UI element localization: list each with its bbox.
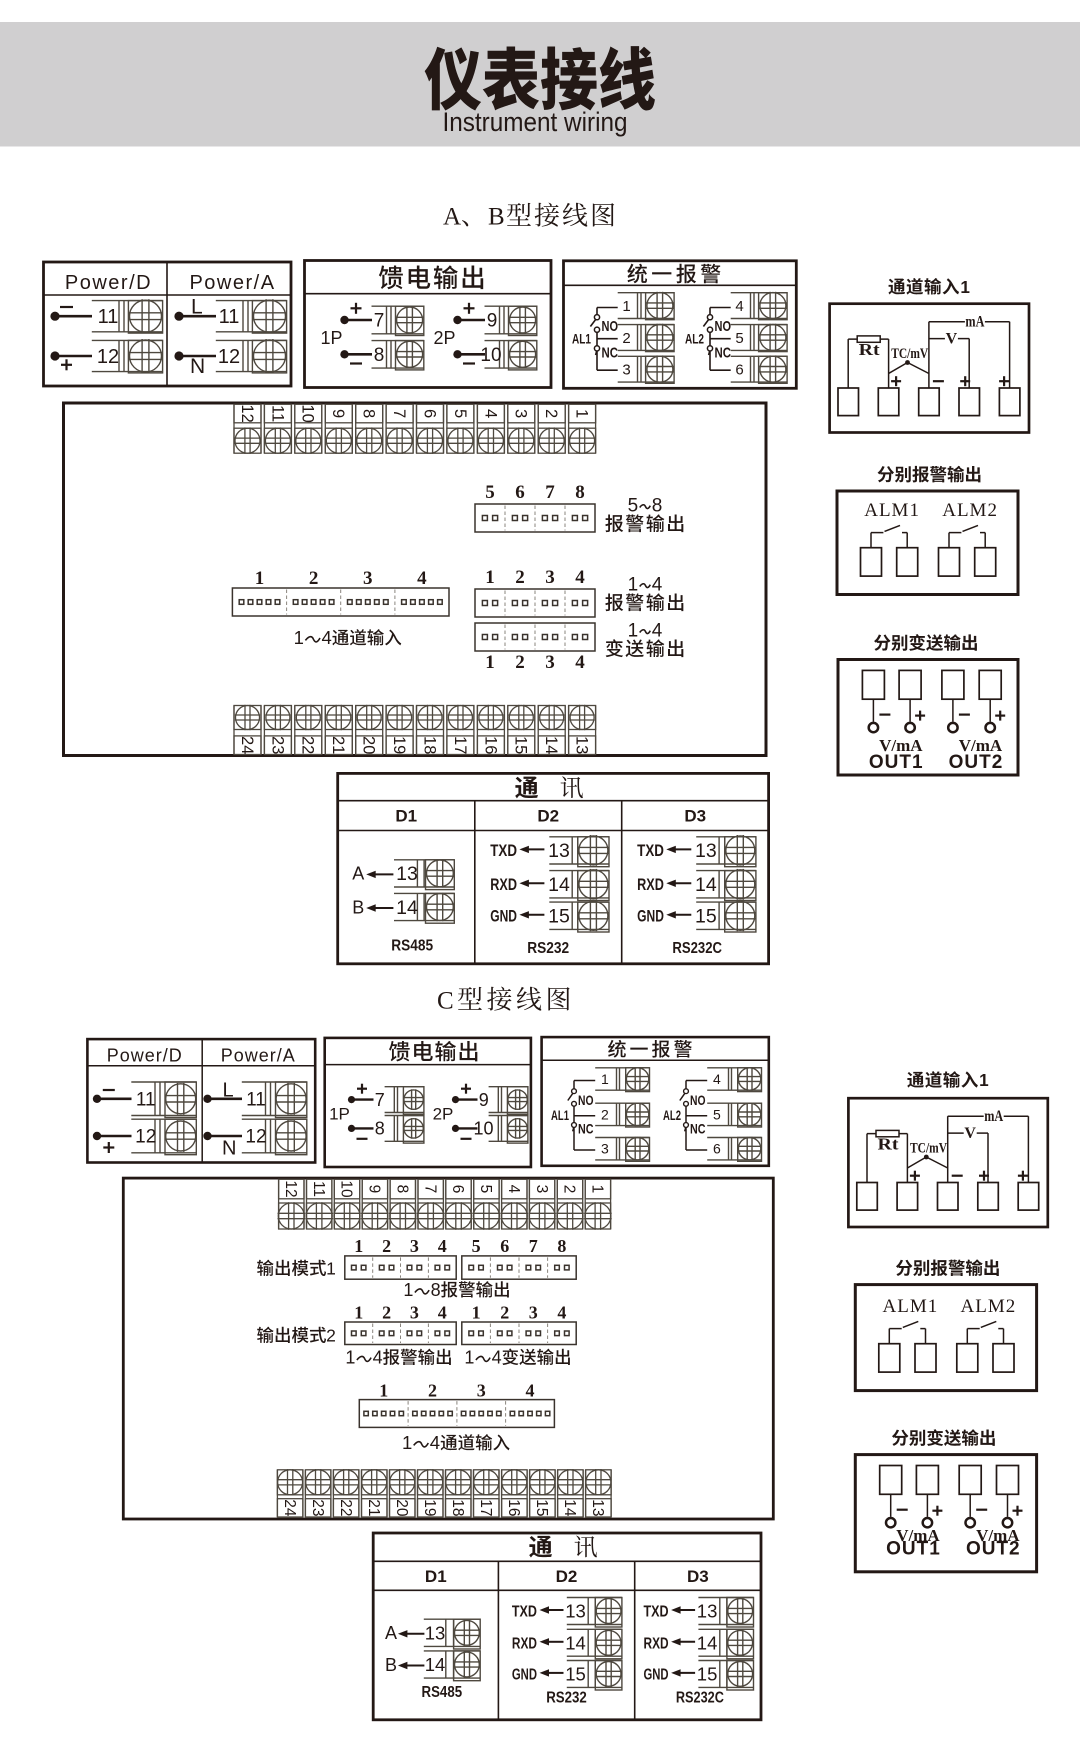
svg-text:4: 4: [492, 1348, 502, 1368]
svg-text:14: 14: [695, 874, 717, 896]
svg-text:15: 15: [695, 906, 717, 928]
svg-text:4: 4: [481, 409, 499, 418]
svg-text:8: 8: [652, 496, 663, 517]
svg-text:11: 11: [310, 1181, 327, 1197]
svg-text:2P: 2P: [433, 1105, 454, 1124]
svg-text:4: 4: [417, 568, 427, 589]
svg-text:14: 14: [396, 897, 418, 919]
svg-text:5: 5: [472, 1236, 481, 1256]
svg-text:2: 2: [561, 1185, 578, 1194]
svg-text:5: 5: [451, 409, 469, 418]
svg-text:D2: D2: [556, 1567, 578, 1586]
svg-text:18: 18: [420, 736, 438, 754]
svg-text:3: 3: [512, 409, 530, 418]
svg-text:7: 7: [529, 1236, 538, 1256]
svg-text:2: 2: [309, 568, 319, 589]
svg-text:NC: NC: [715, 344, 732, 361]
svg-text:RXD: RXD: [643, 1635, 668, 1652]
svg-text:1: 1: [485, 652, 495, 673]
svg-text:B: B: [385, 1655, 397, 1675]
svg-text:RXD: RXD: [490, 876, 517, 894]
svg-text:V: V: [964, 1125, 976, 1142]
svg-text:4: 4: [505, 1185, 522, 1194]
svg-text:RS232C: RS232C: [672, 940, 722, 957]
svg-text:16: 16: [505, 1499, 522, 1516]
svg-text:17: 17: [477, 1499, 494, 1516]
svg-text:1: 1: [573, 409, 591, 418]
svg-text:ALM2: ALM2: [961, 1296, 1017, 1317]
svg-text:GND: GND: [490, 907, 517, 925]
svg-text:NO: NO: [578, 1092, 594, 1108]
svg-text:TC/mV: TC/mV: [891, 346, 928, 362]
svg-text:C: C: [437, 988, 454, 1015]
svg-text:OUT2: OUT2: [949, 752, 1004, 773]
svg-text:1: 1: [345, 1348, 355, 1368]
svg-text:13: 13: [589, 1499, 606, 1516]
svg-text:4: 4: [557, 1303, 566, 1323]
svg-text:15: 15: [512, 736, 530, 754]
svg-text:TC/mV: TC/mV: [910, 1141, 947, 1157]
svg-text:20: 20: [393, 1499, 410, 1517]
svg-text:4: 4: [652, 575, 663, 596]
svg-text:2: 2: [428, 1381, 437, 1401]
svg-text:5: 5: [628, 496, 639, 517]
svg-text:7: 7: [374, 311, 385, 332]
svg-text:Instrument wiring: Instrument wiring: [443, 107, 628, 137]
svg-text:12: 12: [97, 346, 119, 368]
svg-text:B: B: [352, 897, 364, 917]
svg-text:24: 24: [238, 736, 256, 754]
svg-text:Power/D: Power/D: [107, 1046, 183, 1066]
svg-text:1: 1: [464, 1348, 474, 1368]
svg-text:10: 10: [338, 1180, 355, 1198]
svg-text:1: 1: [485, 567, 495, 588]
svg-text:4: 4: [575, 652, 585, 673]
svg-text:4: 4: [373, 1348, 383, 1368]
svg-text:3: 3: [529, 1303, 538, 1323]
svg-text:V: V: [946, 331, 958, 348]
svg-text:1: 1: [294, 627, 304, 648]
svg-text:5: 5: [713, 1106, 721, 1122]
svg-text:AL2: AL2: [685, 331, 704, 347]
svg-text:6: 6: [713, 1141, 721, 1157]
svg-text:NC: NC: [690, 1121, 706, 1137]
svg-text:5: 5: [485, 482, 495, 503]
svg-text:1: 1: [628, 575, 639, 596]
svg-text:2: 2: [500, 1303, 509, 1323]
svg-text:12: 12: [135, 1127, 156, 1148]
svg-text:3: 3: [410, 1236, 419, 1256]
svg-text:6: 6: [420, 409, 438, 418]
svg-text:1: 1: [979, 1070, 989, 1090]
svg-text:3: 3: [533, 1185, 550, 1194]
svg-text:3: 3: [622, 361, 630, 378]
svg-text:2: 2: [601, 1106, 609, 1122]
svg-text:4: 4: [735, 298, 743, 315]
svg-text:NC: NC: [602, 344, 619, 361]
svg-text:7: 7: [390, 409, 408, 418]
svg-text:1: 1: [622, 298, 630, 315]
svg-text:24: 24: [281, 1499, 298, 1517]
svg-text:4: 4: [438, 1236, 447, 1256]
svg-text:8: 8: [557, 1236, 566, 1256]
svg-text:9: 9: [479, 1090, 489, 1110]
svg-text:A: A: [443, 204, 461, 231]
svg-text:6: 6: [500, 1236, 509, 1256]
svg-text:8: 8: [575, 482, 585, 503]
svg-text:14: 14: [425, 1654, 446, 1675]
svg-text:15: 15: [533, 1499, 550, 1516]
svg-text:8: 8: [375, 1119, 385, 1139]
svg-text:12: 12: [282, 1180, 299, 1197]
svg-text:8: 8: [374, 345, 385, 366]
svg-text:5: 5: [735, 330, 743, 347]
svg-text:20: 20: [360, 736, 378, 754]
svg-text:AL2: AL2: [663, 1108, 681, 1123]
svg-text:Power/A: Power/A: [221, 1046, 296, 1066]
svg-text:2: 2: [622, 330, 630, 347]
svg-text:AL1: AL1: [572, 331, 591, 347]
svg-text:D2: D2: [537, 807, 559, 826]
svg-text:13: 13: [573, 736, 591, 754]
svg-text:AL1: AL1: [551, 1108, 569, 1123]
svg-text:11: 11: [98, 306, 119, 328]
svg-text:A: A: [352, 864, 364, 884]
svg-text:6: 6: [515, 482, 525, 503]
svg-text:Rt: Rt: [859, 340, 881, 359]
svg-text:12: 12: [218, 346, 240, 368]
svg-text:7: 7: [421, 1185, 438, 1194]
svg-text:6: 6: [449, 1185, 466, 1194]
svg-text:GND: GND: [637, 907, 664, 925]
svg-text:RS232: RS232: [527, 940, 569, 957]
svg-text:Power/D: Power/D: [65, 272, 152, 294]
svg-text:8: 8: [393, 1185, 410, 1194]
svg-text:1P: 1P: [329, 1105, 350, 1124]
svg-text:1: 1: [472, 1303, 481, 1323]
svg-text:2: 2: [542, 409, 560, 418]
svg-text:11: 11: [268, 405, 286, 422]
svg-text:D1: D1: [395, 807, 417, 826]
svg-text:RS232: RS232: [546, 1690, 587, 1707]
svg-text:23: 23: [309, 1499, 326, 1516]
svg-text:4: 4: [652, 621, 663, 642]
svg-text:7: 7: [545, 482, 555, 503]
svg-text:4: 4: [430, 1432, 440, 1453]
svg-text:1: 1: [354, 1303, 363, 1323]
svg-text:13: 13: [565, 1601, 586, 1622]
svg-text:TXD: TXD: [643, 1604, 668, 1621]
svg-text:8: 8: [431, 1280, 441, 1300]
svg-text:8: 8: [360, 409, 378, 418]
svg-text:ALM1: ALM1: [883, 1296, 939, 1317]
svg-text:N: N: [190, 355, 205, 378]
svg-text:14: 14: [561, 1499, 578, 1517]
svg-text:2: 2: [382, 1236, 391, 1256]
svg-text:1: 1: [354, 1236, 363, 1256]
svg-text:12: 12: [238, 404, 256, 422]
svg-text:3: 3: [477, 1381, 486, 1401]
svg-text:21: 21: [329, 736, 347, 754]
svg-text:9: 9: [366, 1185, 383, 1194]
svg-text:2: 2: [515, 652, 525, 673]
svg-text:ALM2: ALM2: [942, 500, 998, 521]
svg-text:NC: NC: [578, 1121, 594, 1137]
svg-text:2: 2: [382, 1303, 391, 1323]
svg-text:OUT1: OUT1: [886, 1539, 941, 1560]
svg-text:L: L: [191, 296, 203, 319]
svg-text:13: 13: [425, 1622, 446, 1643]
svg-text:A: A: [385, 1623, 397, 1643]
svg-text:RS485: RS485: [421, 1684, 462, 1701]
svg-text:D3: D3: [684, 807, 706, 826]
svg-text:15: 15: [548, 906, 570, 928]
svg-text:6: 6: [735, 361, 743, 378]
svg-text:2: 2: [326, 1326, 336, 1346]
svg-text:RS485: RS485: [391, 938, 433, 955]
svg-text:23: 23: [268, 736, 286, 754]
svg-text:19: 19: [390, 736, 408, 754]
svg-text:1: 1: [628, 621, 639, 642]
svg-text:15: 15: [565, 1663, 586, 1684]
svg-text:4: 4: [321, 627, 331, 648]
svg-text:OUT2: OUT2: [966, 1539, 1021, 1560]
svg-text:11: 11: [136, 1090, 156, 1111]
svg-text:L: L: [223, 1080, 234, 1102]
svg-text:mA: mA: [965, 314, 984, 331]
svg-text:mA: mA: [984, 1108, 1003, 1125]
svg-text:19: 19: [421, 1499, 438, 1516]
svg-text:14: 14: [565, 1632, 586, 1653]
svg-text:4: 4: [713, 1071, 721, 1087]
svg-text:RS232C: RS232C: [676, 1690, 724, 1707]
svg-text:13: 13: [697, 1601, 718, 1622]
svg-text:14: 14: [542, 736, 560, 754]
svg-text:Rt: Rt: [878, 1135, 900, 1154]
svg-text:3: 3: [410, 1303, 419, 1323]
svg-text:14: 14: [548, 874, 570, 896]
svg-text:3: 3: [363, 568, 373, 589]
svg-text:4: 4: [526, 1381, 535, 1401]
svg-text:2: 2: [515, 567, 525, 588]
svg-text:1: 1: [403, 1280, 413, 1300]
svg-text:13: 13: [548, 840, 570, 862]
svg-text:22: 22: [299, 736, 317, 754]
svg-text:1: 1: [589, 1185, 606, 1194]
svg-text:1: 1: [402, 1432, 412, 1453]
svg-text:Power/A: Power/A: [189, 272, 275, 294]
svg-text:3: 3: [601, 1141, 609, 1157]
svg-text:11: 11: [219, 306, 240, 328]
svg-text:13: 13: [695, 840, 717, 862]
svg-text:N: N: [222, 1138, 236, 1160]
svg-text:ALM1: ALM1: [864, 500, 920, 521]
svg-text:13: 13: [396, 863, 418, 885]
svg-text:NO: NO: [602, 318, 619, 335]
svg-text:NO: NO: [690, 1092, 706, 1108]
svg-text:5: 5: [477, 1185, 494, 1194]
svg-text:1: 1: [960, 277, 970, 297]
svg-text:OUT1: OUT1: [869, 752, 924, 773]
svg-text:4: 4: [575, 567, 585, 588]
svg-text:21: 21: [365, 1499, 382, 1516]
svg-text:3: 3: [545, 567, 555, 588]
svg-text:2P: 2P: [433, 328, 455, 348]
svg-text:TXD: TXD: [512, 1604, 537, 1621]
svg-text:TXD: TXD: [490, 842, 517, 860]
svg-text:D1: D1: [425, 1567, 447, 1586]
svg-text:9: 9: [329, 409, 347, 418]
svg-text:RXD: RXD: [637, 876, 664, 894]
svg-text:4: 4: [438, 1303, 447, 1323]
svg-text:14: 14: [697, 1632, 718, 1653]
svg-text:16: 16: [481, 736, 499, 754]
svg-text:B: B: [488, 204, 505, 231]
svg-text:10: 10: [299, 404, 317, 422]
svg-text:11: 11: [246, 1090, 266, 1111]
svg-text:12: 12: [245, 1127, 266, 1148]
svg-text:22: 22: [337, 1499, 354, 1516]
svg-text:1: 1: [255, 568, 265, 589]
svg-text:9: 9: [487, 311, 498, 332]
svg-text:NO: NO: [715, 318, 732, 335]
svg-text:GND: GND: [512, 1666, 537, 1683]
svg-text:D3: D3: [687, 1567, 709, 1586]
svg-text:17: 17: [451, 736, 469, 754]
svg-text:18: 18: [449, 1499, 466, 1516]
svg-text:3: 3: [545, 652, 555, 673]
svg-text:1P: 1P: [320, 328, 342, 348]
svg-text:GND: GND: [643, 1666, 668, 1683]
svg-text:1: 1: [601, 1071, 609, 1087]
svg-text:TXD: TXD: [637, 842, 664, 860]
svg-text:RXD: RXD: [512, 1635, 537, 1652]
svg-text:1: 1: [379, 1381, 388, 1401]
svg-text:7: 7: [375, 1090, 385, 1110]
svg-text:1: 1: [326, 1259, 336, 1279]
svg-text:15: 15: [697, 1663, 718, 1684]
